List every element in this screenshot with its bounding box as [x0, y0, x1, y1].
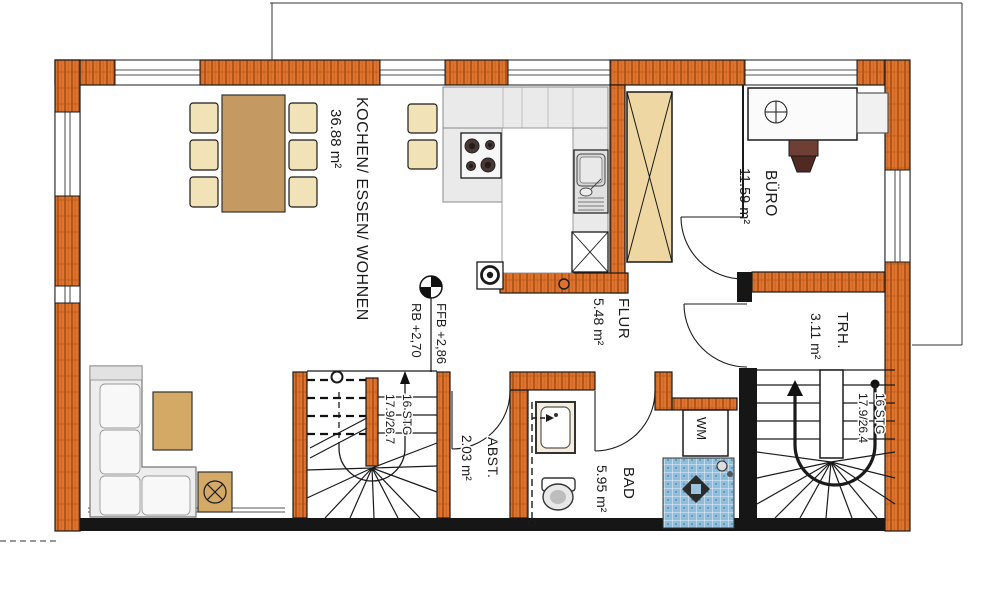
window-right-office: [885, 170, 910, 262]
wall-right: [885, 60, 910, 531]
room-area-abst: 2.03 m²: [459, 435, 474, 481]
room-label-buero: BÜRO: [762, 170, 780, 217]
washing-machine-label: WM: [694, 417, 709, 440]
stair1-upper-flight-dashed: [307, 380, 366, 434]
room-label-bad: BAD: [620, 467, 637, 499]
wall-trh-west-dark: [739, 368, 757, 531]
stove: [461, 133, 501, 178]
dining-area: [190, 95, 437, 212]
hall-cabinet: [627, 92, 672, 262]
wall-stair1-spine: [366, 378, 378, 466]
level-rb-label: RB +2,70: [409, 303, 424, 358]
wall-bad-west: [510, 390, 528, 518]
washbasin: [536, 402, 575, 453]
wall-corner-dark: [737, 272, 752, 302]
window-left-upper: [55, 112, 80, 196]
stair2-dims-label: 17.9/26.4: [856, 393, 870, 443]
kitchen-counter-top: [443, 87, 608, 128]
window-top-dining: [380, 60, 445, 85]
room-label-trh: TRH.: [834, 312, 851, 349]
window-left-lower: [55, 286, 80, 303]
newel-post: [332, 372, 343, 383]
side-table: [198, 472, 232, 512]
wall-stair1-west: [293, 372, 307, 518]
base-cabinet-x: [572, 232, 608, 272]
coffee-table: [153, 392, 192, 450]
room-label-abst: ABST.: [485, 437, 501, 478]
stair2-void: [820, 370, 843, 458]
wall-abst-bad-north-a: [510, 372, 595, 390]
room-area-buero: 11.59 m²: [736, 168, 752, 224]
room-area-wohnen: 36.88 m²: [327, 109, 344, 168]
room-label-wohnen: KOCHEN/ ESSEN/ WOHNEN: [353, 97, 370, 321]
shower: [663, 458, 734, 528]
wall-abst-bad-north-b: [655, 372, 672, 410]
sink: [574, 150, 608, 213]
bathroom: [529, 402, 576, 527]
desk-container: [857, 93, 888, 133]
wall-top-4: [610, 60, 745, 85]
door-trh: [684, 304, 747, 367]
stair1-steps-label: 16 STG: [400, 394, 414, 435]
door-office: [681, 217, 743, 279]
room-area-bad: 5.95 m²: [594, 465, 610, 513]
stair1-dims-label: 17.9/26.7: [383, 394, 397, 444]
wall-wm-bay-north: [672, 398, 737, 410]
toilet: [542, 478, 575, 510]
office: [748, 88, 888, 172]
stair2-steps-label: 16 STG: [873, 393, 887, 434]
desk: [748, 88, 857, 140]
room-area-flur: 5.48 m²: [591, 298, 607, 346]
window-top-kitchen: [508, 60, 610, 85]
dining-table: [222, 95, 285, 212]
floorplan-canvas: KOCHEN/ ESSEN/ WOHNEN 36.88 m² BÜRO 11.5…: [0, 0, 1000, 602]
sofa-backrest: [90, 366, 142, 380]
kitchen-appliance: [477, 262, 503, 289]
kitchen-island: [502, 128, 573, 273]
living-area: [90, 366, 232, 517]
floorplan-drawing: KOCHEN/ ESSEN/ WOHNEN 36.88 m² BÜRO 11.5…: [0, 0, 1000, 602]
window-top-living: [115, 60, 200, 85]
wall-top-3: [445, 60, 508, 85]
wall-dot: [559, 279, 569, 289]
room-area-trh: 3.11 m²: [808, 313, 824, 360]
door-bad: [595, 391, 655, 451]
window-top-office: [745, 60, 857, 85]
level-ffb-label: FFB +2,86: [434, 303, 449, 364]
wall-kitchen-vertical: [610, 85, 625, 293]
wall-stair1-east: [437, 372, 450, 518]
wall-top-2: [200, 60, 380, 85]
kitchen: [443, 87, 608, 289]
wall-bottom-dark: [80, 518, 885, 531]
room-label-flur: FLUR: [615, 298, 632, 339]
office-chair: [789, 140, 818, 172]
desk-lamp-symbol: [765, 101, 787, 123]
wall-top-5: [857, 60, 885, 85]
wall-office-trh: [752, 272, 885, 292]
